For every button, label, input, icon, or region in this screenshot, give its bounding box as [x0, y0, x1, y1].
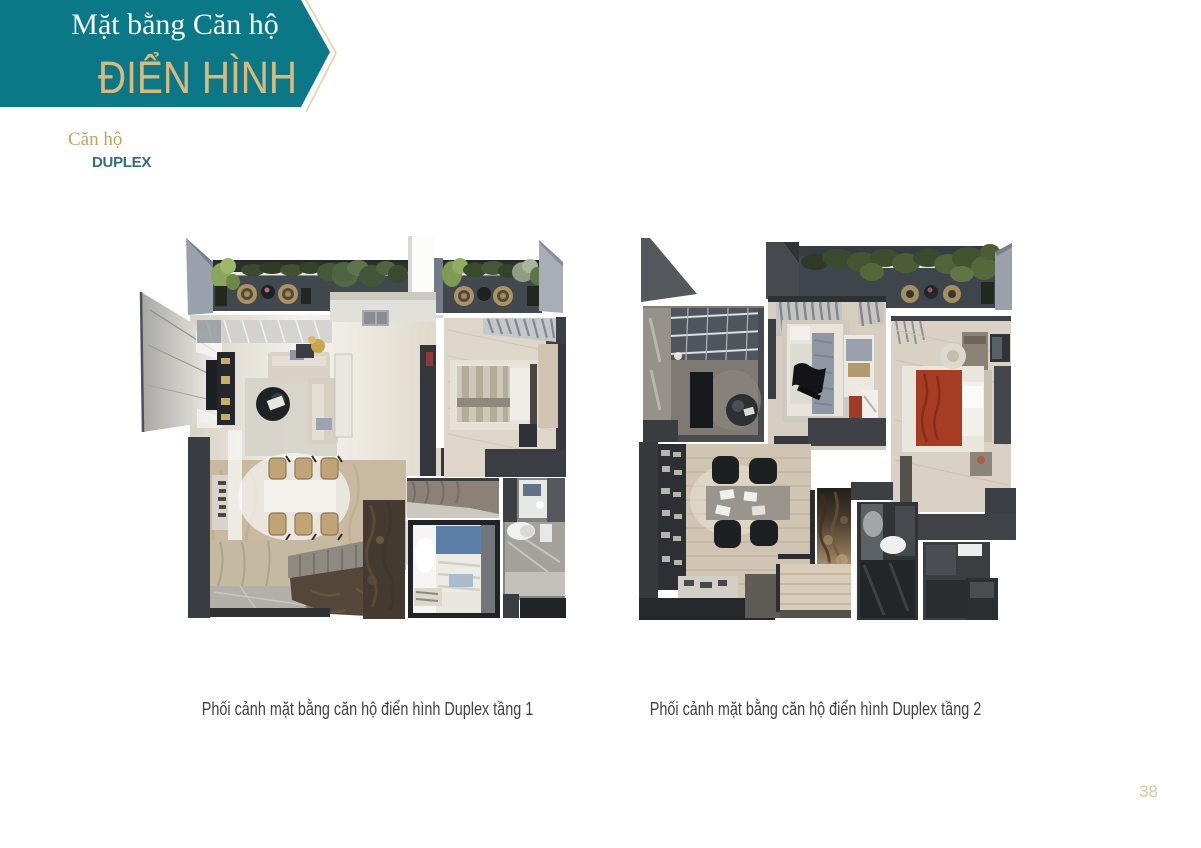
- svg-text:ĐIỂN HÌNH: ĐIỂN HÌNH: [98, 52, 297, 103]
- svg-text:Mặt bằng Căn hộ: Mặt bằng Căn hộ: [71, 8, 278, 41]
